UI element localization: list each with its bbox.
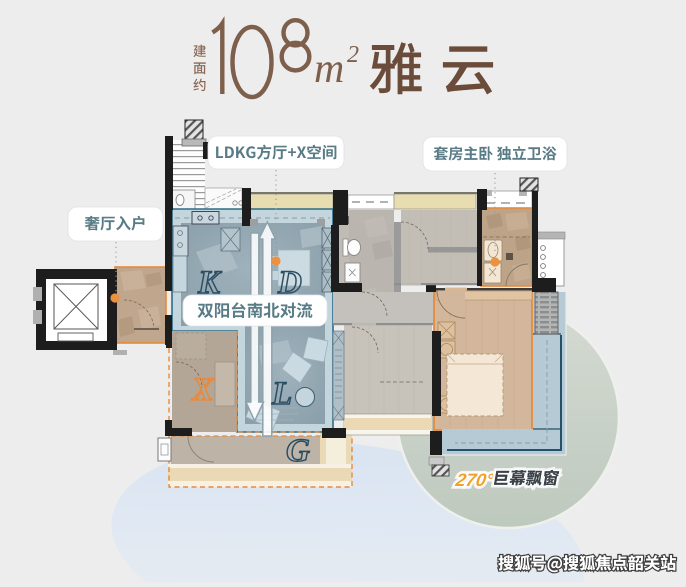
svg-text:m: m — [314, 46, 344, 92]
svg-text:G: G — [286, 433, 310, 469]
svg-text:L: L — [271, 376, 292, 412]
svg-text:X: X — [191, 372, 215, 408]
svg-text:2: 2 — [347, 42, 359, 68]
svg-text:270°: 270° — [453, 470, 495, 490]
